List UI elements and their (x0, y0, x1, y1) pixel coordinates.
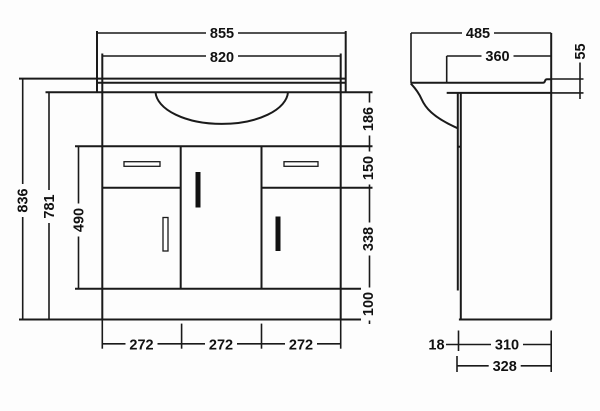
svg-text:820: 820 (210, 50, 234, 66)
svg-text:328: 328 (493, 359, 517, 375)
svg-text:100: 100 (361, 292, 377, 316)
svg-text:836: 836 (16, 188, 32, 212)
svg-text:360: 360 (485, 49, 509, 65)
svg-text:55: 55 (573, 43, 589, 59)
svg-text:272: 272 (289, 338, 313, 354)
svg-text:186: 186 (361, 107, 377, 131)
svg-text:490: 490 (72, 208, 88, 232)
svg-text:855: 855 (210, 26, 234, 42)
svg-text:310: 310 (495, 338, 519, 354)
svg-text:272: 272 (209, 338, 233, 354)
svg-text:338: 338 (361, 227, 377, 251)
svg-text:781: 781 (42, 194, 58, 218)
svg-text:18: 18 (428, 338, 444, 354)
svg-text:272: 272 (129, 338, 153, 354)
svg-text:485: 485 (466, 26, 490, 42)
svg-text:150: 150 (361, 156, 377, 180)
